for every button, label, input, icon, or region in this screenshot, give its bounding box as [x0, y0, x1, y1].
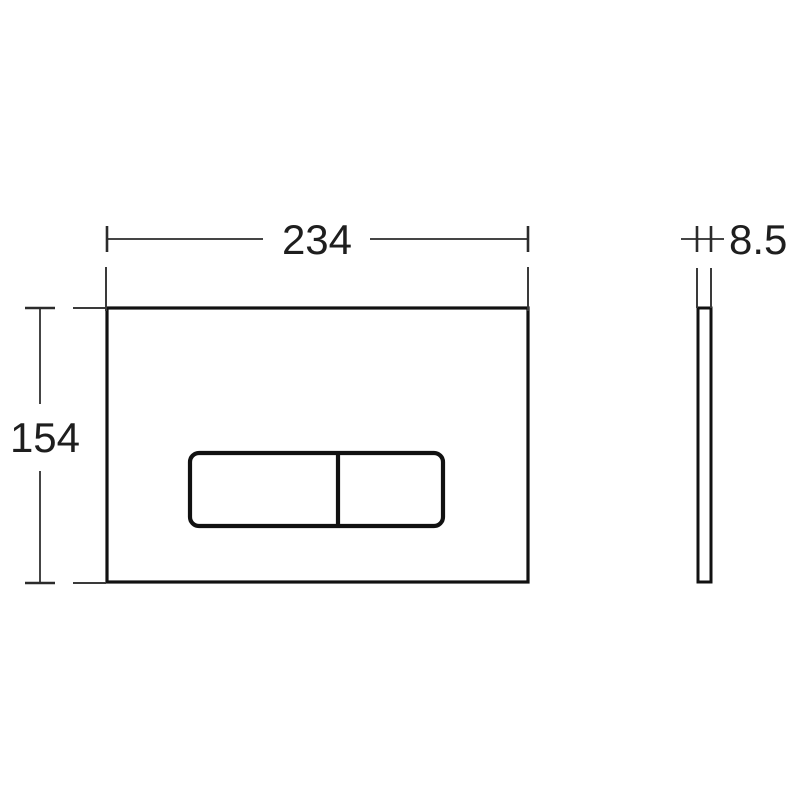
height-dimension: 154 [10, 308, 106, 583]
width-dimension: 234 [106, 216, 528, 311]
thickness-dimension: 8.5 [681, 216, 787, 308]
width-dimension-label: 234 [282, 216, 352, 263]
height-dimension-label: 154 [10, 414, 80, 461]
plate-side-outline [698, 308, 711, 582]
thickness-dimension-label: 8.5 [729, 216, 787, 263]
plate-front-outline [107, 308, 528, 582]
dimension-drawing: 234 154 8.5 [0, 0, 800, 800]
flush-button-frame [190, 453, 443, 526]
drawing-canvas: 234 154 8.5 [0, 0, 800, 800]
